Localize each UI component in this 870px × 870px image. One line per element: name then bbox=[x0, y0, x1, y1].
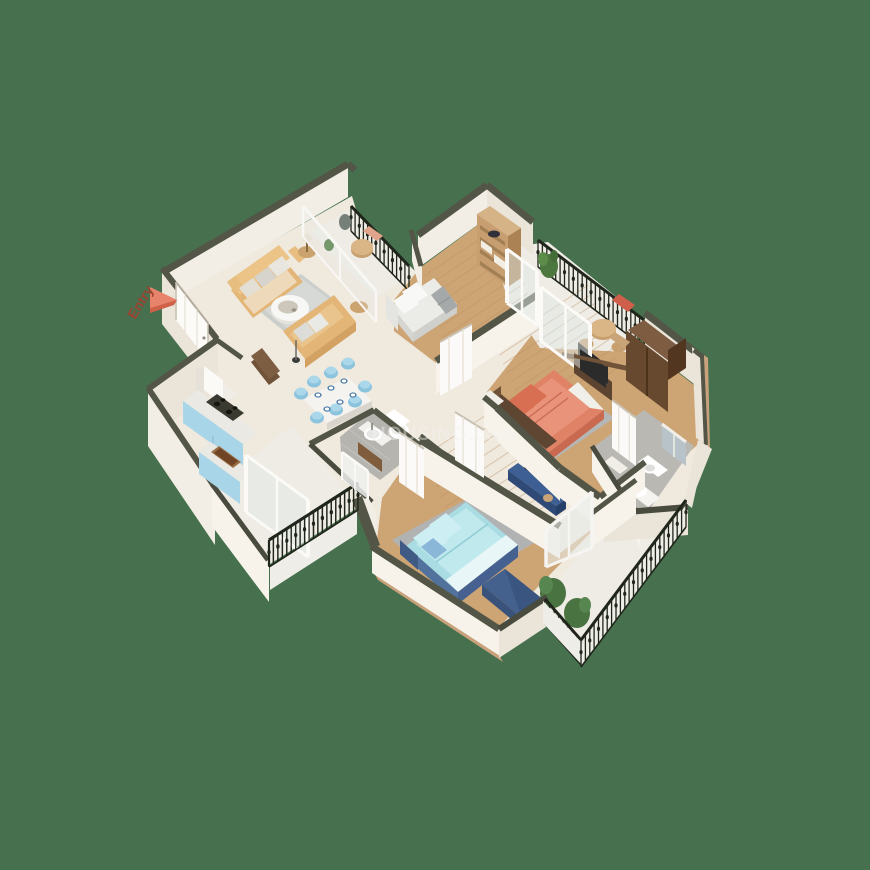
svg-text:HOUSING.com: HOUSING.com bbox=[372, 424, 516, 445]
